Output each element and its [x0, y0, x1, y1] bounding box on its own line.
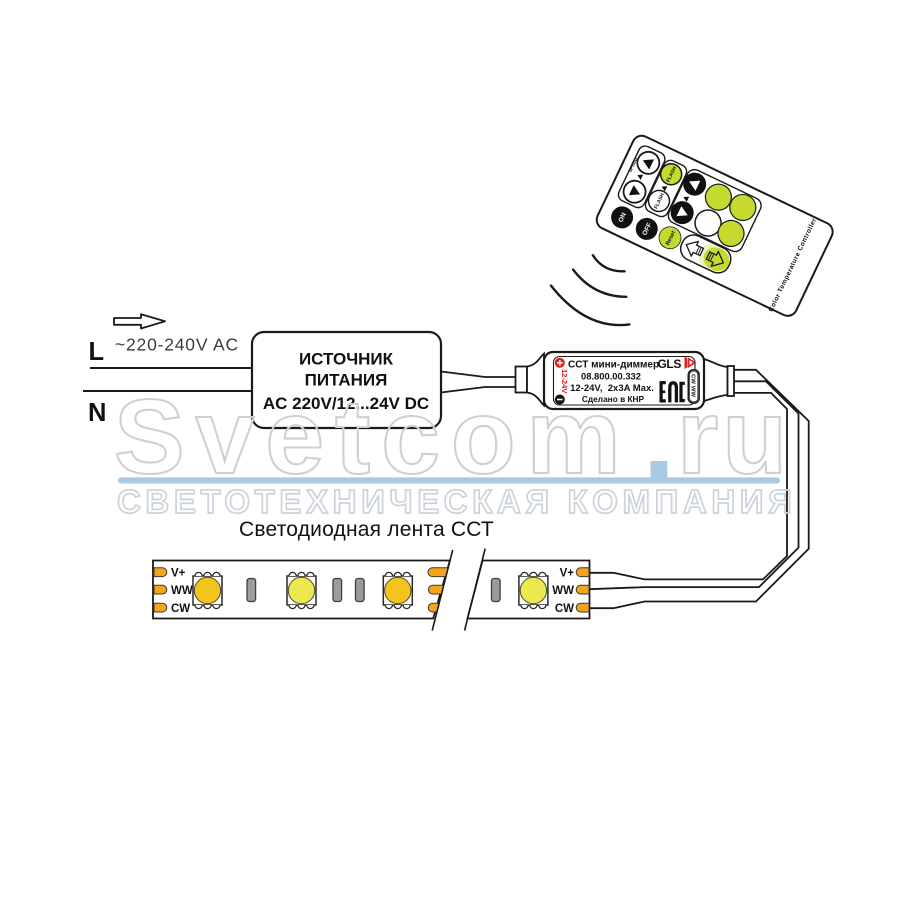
svg-text:ССТ мини-диммер: ССТ мини-диммер: [568, 360, 659, 371]
svg-text:Светодиодная лента ССТ: Светодиодная лента ССТ: [239, 518, 494, 541]
svg-text:~220-240V AC: ~220-240V AC: [115, 335, 239, 355]
svg-text:СВЕТОТЕХНИЧЕСКАЯ КОМПАНИЯ: СВЕТОТЕХНИЧЕСКАЯ КОМПАНИЯ: [117, 483, 796, 520]
svg-text:L: L: [89, 338, 105, 366]
svg-text:WW: WW: [171, 585, 193, 597]
svg-text:ИСТОЧНИК: ИСТОЧНИК: [299, 350, 394, 369]
svg-text:N: N: [88, 399, 106, 427]
svg-text:V+: V+: [560, 568, 575, 580]
svg-text:CW: CW: [171, 603, 190, 615]
svg-text:WW: WW: [552, 585, 574, 597]
svg-text:CW: CW: [555, 603, 574, 615]
svg-text:GLS: GLS: [658, 357, 682, 371]
svg-text:V+: V+: [171, 568, 186, 580]
